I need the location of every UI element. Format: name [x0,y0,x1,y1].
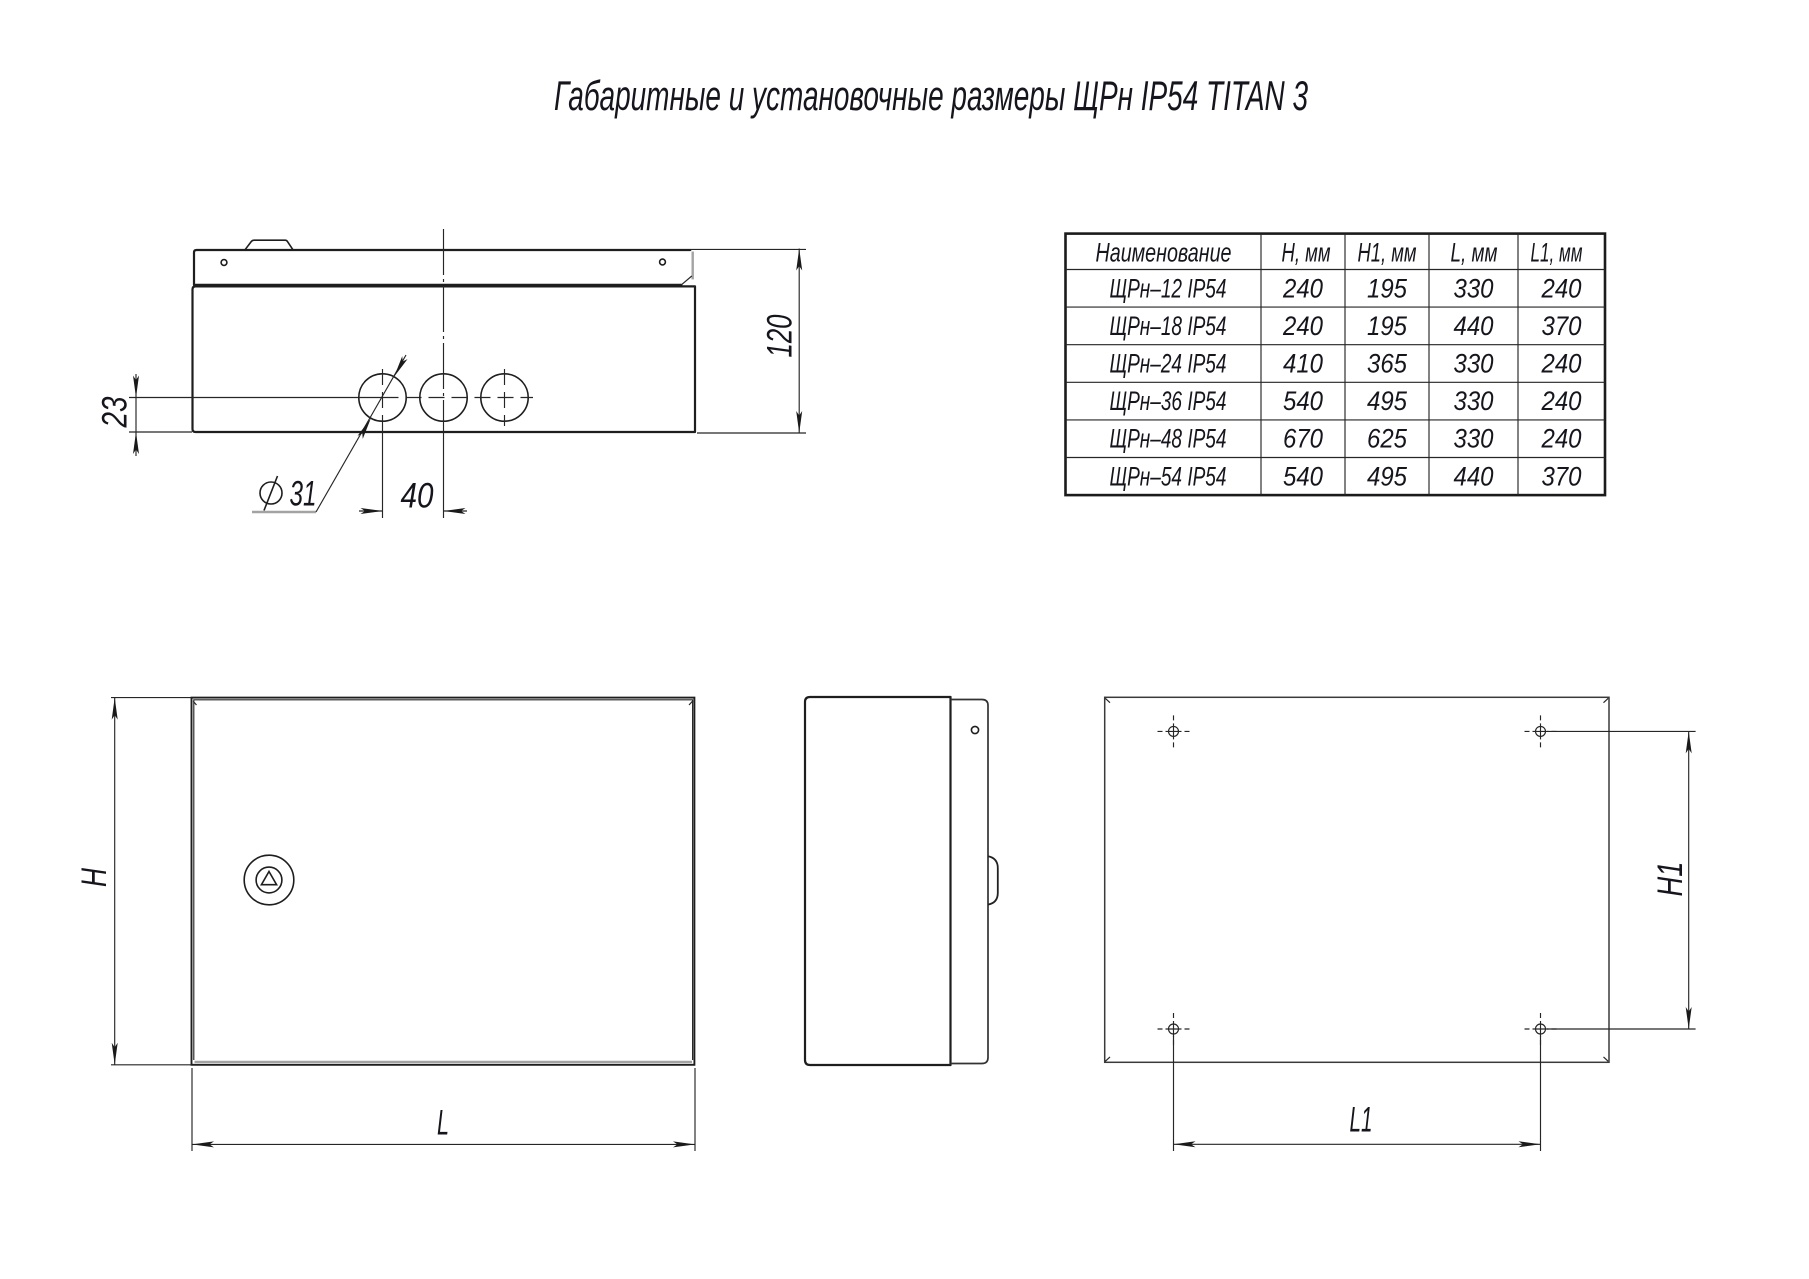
svg-text:540: 540 [1283,462,1323,492]
svg-text:Наименование: Наименование [1096,238,1232,268]
svg-text:H, мм: H, мм [1282,238,1331,268]
svg-text:240: 240 [1282,311,1323,341]
svg-text:L, мм: L, мм [1451,238,1498,268]
svg-text:ЩРн–12 IP54: ЩРн–12 IP54 [1110,274,1227,304]
svg-text:240: 240 [1541,349,1582,379]
svg-text:195: 195 [1367,274,1408,304]
svg-text:370: 370 [1542,311,1582,341]
svg-text:40: 40 [401,477,434,516]
svg-text:ЩРн–24 IP54: ЩРн–24 IP54 [1110,349,1227,379]
svg-text:540: 540 [1283,386,1323,416]
svg-text:330: 330 [1454,274,1494,304]
svg-text:365: 365 [1367,349,1408,379]
svg-text:23: 23 [96,396,135,428]
svg-text:370: 370 [1542,462,1582,492]
svg-text:ЩРн–54 IP54: ЩРн–54 IP54 [1110,462,1227,492]
svg-text:670: 670 [1283,424,1323,454]
svg-text:ЩРн–18 IP54: ЩРн–18 IP54 [1110,311,1227,341]
svg-text:240: 240 [1282,274,1323,304]
svg-text:410: 410 [1283,349,1323,379]
svg-text:240: 240 [1541,424,1582,454]
svg-text:195: 195 [1367,311,1408,341]
svg-text:L1, мм: L1, мм [1531,238,1583,268]
svg-text:440: 440 [1454,311,1494,341]
svg-text:H1: H1 [1651,862,1690,897]
svg-text:Габаритные и установочные разм: Габаритные и установочные размеры ЩРн IP… [554,72,1308,119]
svg-text:L: L [437,1104,449,1143]
svg-text:240: 240 [1541,274,1582,304]
svg-text:120: 120 [761,314,800,357]
svg-text:440: 440 [1454,462,1494,492]
svg-text:ЩРн–36 IP54: ЩРн–36 IP54 [1110,386,1227,416]
svg-text:H1, мм: H1, мм [1358,238,1417,268]
svg-text:H: H [75,867,114,887]
svg-text:L1: L1 [1350,1101,1373,1140]
svg-text:31: 31 [290,475,317,514]
svg-text:495: 495 [1367,386,1408,416]
svg-text:330: 330 [1454,386,1494,416]
svg-text:625: 625 [1367,424,1408,454]
svg-text:240: 240 [1541,386,1582,416]
svg-text:330: 330 [1454,349,1494,379]
svg-text:ЩРн–48 IP54: ЩРн–48 IP54 [1110,424,1227,454]
svg-text:330: 330 [1454,424,1494,454]
svg-text:495: 495 [1367,462,1408,492]
